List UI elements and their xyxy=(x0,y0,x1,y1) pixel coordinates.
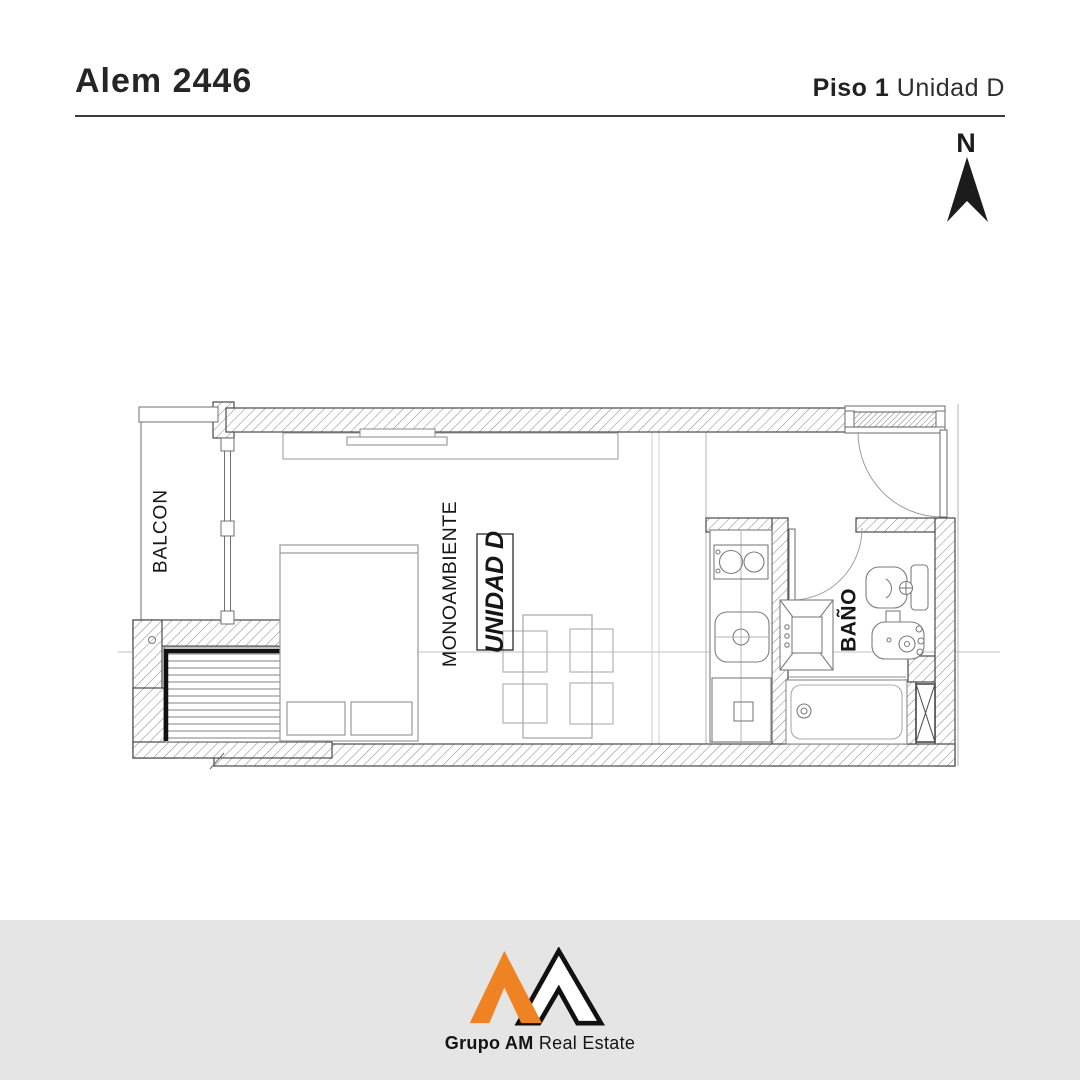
brand-name: Grupo AM Real Estate xyxy=(445,1033,635,1054)
kitchen xyxy=(710,530,772,742)
bathroom-label: BAÑO xyxy=(838,588,861,652)
north-arrow-glyph xyxy=(947,157,988,222)
floorplan-sheet: Alem 2446 Piso 1 Unidad D N xyxy=(0,0,1080,1080)
brand-logo xyxy=(465,947,615,1029)
entry-door-swing xyxy=(858,432,941,517)
toilet xyxy=(866,565,928,610)
north-label: N xyxy=(956,128,976,158)
table xyxy=(523,615,592,738)
bidet xyxy=(872,622,924,659)
dining-set xyxy=(503,615,613,738)
pillow xyxy=(287,702,345,735)
north-arrow: N xyxy=(947,128,988,222)
floor-plan: N xyxy=(0,0,1080,1080)
entry-wall xyxy=(845,406,945,433)
pillow xyxy=(351,702,412,735)
duct-shaft xyxy=(916,684,935,742)
shower xyxy=(780,600,833,670)
entry-door-leaf xyxy=(940,430,947,517)
chair xyxy=(503,684,547,723)
bathtub xyxy=(786,677,907,744)
footer: Grupo AM Real Estate xyxy=(0,920,1080,1080)
logo-a-glyph xyxy=(470,950,542,1022)
bed xyxy=(280,545,418,741)
unit-tag-label: UNIDAD D xyxy=(481,531,509,653)
studio-label: MONOAMBIENTE xyxy=(439,501,461,667)
closet xyxy=(283,429,618,459)
bath-door-leaf xyxy=(789,529,795,600)
balcony-label: BALCON xyxy=(151,489,172,573)
